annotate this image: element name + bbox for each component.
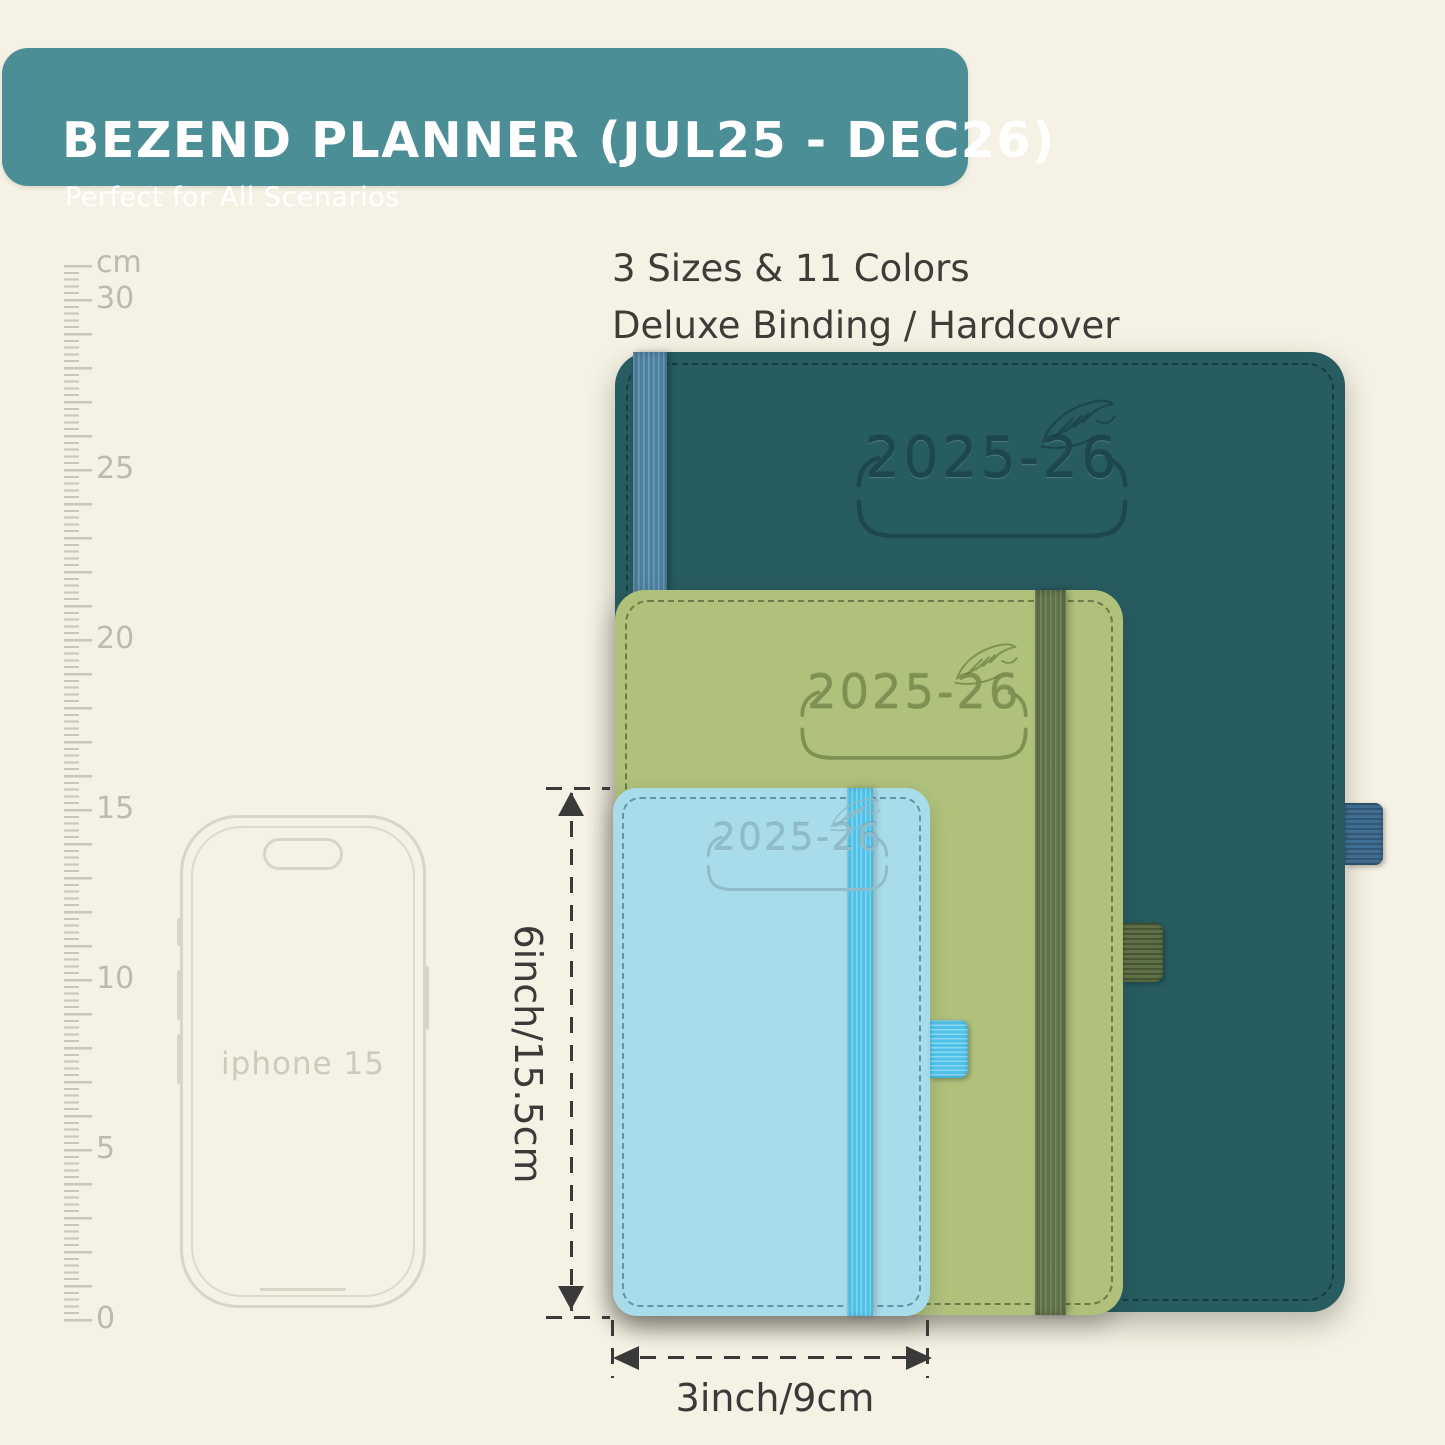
phone-outline: iphone 15 xyxy=(180,815,426,1308)
phone-side-button xyxy=(177,918,181,946)
info-line-binding: Deluxe Binding / Hardcover xyxy=(612,297,1119,354)
banner-title: BEZEND PLANNER (JUL25 - DEC26) xyxy=(62,112,1056,169)
dimension-line-horizontal xyxy=(640,1356,906,1359)
banner: BEZEND PLANNER (JUL25 - DEC26) Perfect f… xyxy=(2,48,968,186)
phone-side-button xyxy=(425,966,429,1030)
ruler-label: 10 xyxy=(96,964,156,994)
product-info: 3 Sizes & 11 Colors Deluxe Binding / Har… xyxy=(612,240,1119,354)
arrowhead-left-icon xyxy=(613,1346,639,1370)
phone-port-icon xyxy=(260,1288,346,1291)
phone-label: iphone 15 xyxy=(183,1046,423,1082)
year-label: 2025-26 xyxy=(842,426,1142,491)
pen-loop-medium xyxy=(1123,923,1163,982)
ruler-label-unit: cm xyxy=(96,248,156,278)
ruler-label: 0 xyxy=(96,1304,156,1334)
planner-logo-large: 2025-26 xyxy=(842,398,1142,548)
pen-loop-small xyxy=(930,1020,968,1078)
phone-side-button xyxy=(177,970,181,1020)
ruler-ticks-major xyxy=(64,265,92,1323)
pen-loop-large xyxy=(1345,803,1383,865)
arrowhead-down-icon xyxy=(558,1286,584,1310)
year-label: 2025-26 xyxy=(697,816,898,860)
ruler-label: 15 xyxy=(96,794,156,824)
banner-subtitle: Perfect for All Scenarios xyxy=(65,182,400,213)
product-size-diagram: BEZEND PLANNER (JUL25 - DEC26) Perfect f… xyxy=(0,0,1445,1445)
dimension-tick xyxy=(546,787,610,790)
planner-logo-medium: 2025-26 xyxy=(788,642,1040,768)
year-label: 2025-26 xyxy=(788,666,1040,721)
planner-logo-small: 2025-26 xyxy=(697,797,898,898)
height-dimension-label: 6inch/15.5cm xyxy=(502,821,554,1287)
ruler-label: 25 xyxy=(96,454,156,484)
ruler-label: 5 xyxy=(96,1134,156,1164)
ruler-label: 20 xyxy=(96,624,156,654)
dynamic-island-icon xyxy=(263,838,343,870)
dimension-tick xyxy=(546,1316,610,1319)
width-dimension-label: 3inch/9cm xyxy=(620,1376,930,1420)
phone-side-button xyxy=(177,1034,181,1084)
ruler-label: 30 xyxy=(96,284,156,314)
dimension-line-vertical xyxy=(570,793,573,1311)
arrowhead-up-icon xyxy=(558,792,584,816)
arrowhead-right-icon xyxy=(906,1346,932,1370)
info-line-sizes: 3 Sizes & 11 Colors xyxy=(612,240,1119,297)
